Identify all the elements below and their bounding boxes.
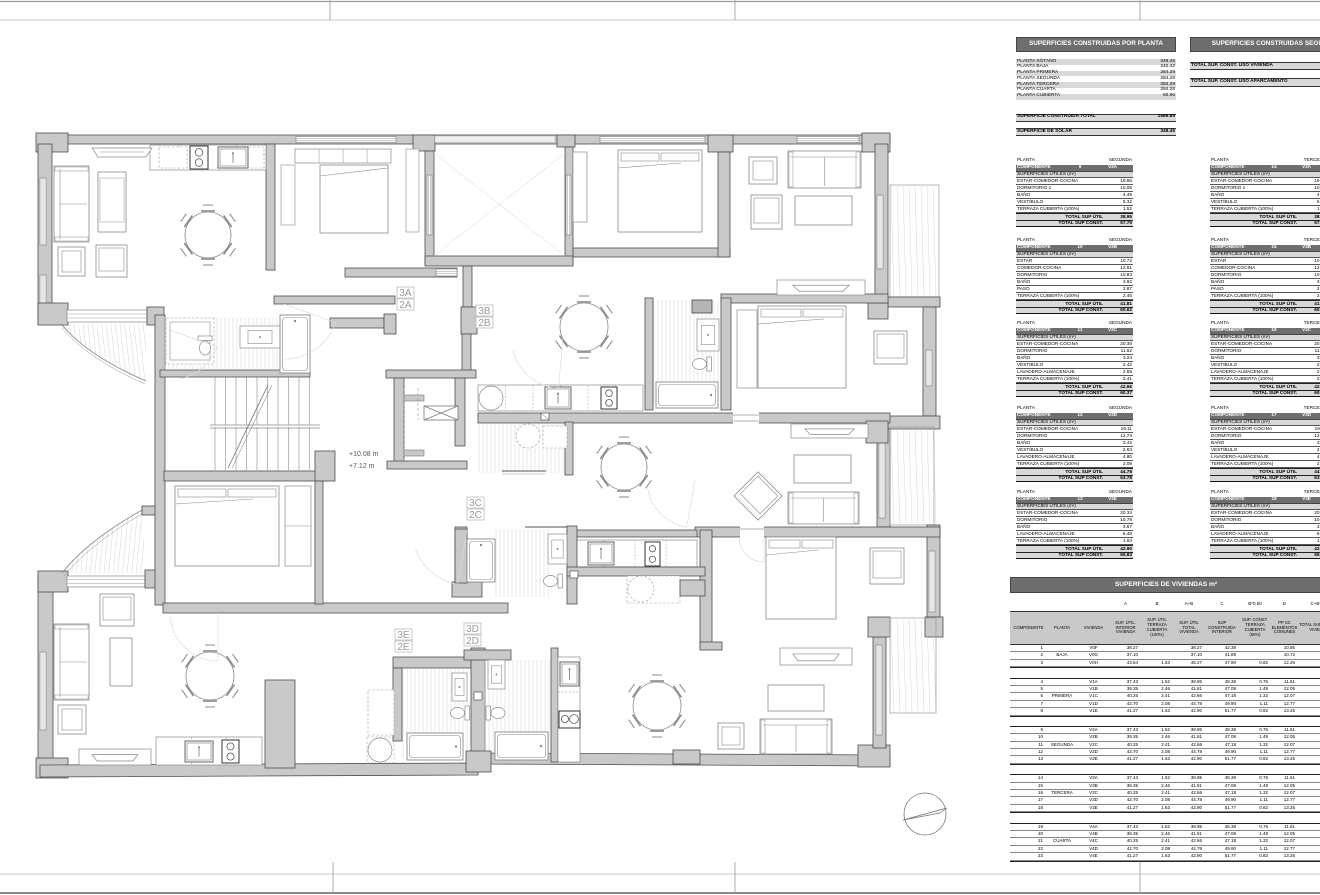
svg-text:3E: 3E [397,630,410,641]
svg-text:+7.12 m: +7.12 m [349,463,375,470]
svg-text:3B: 3B [478,306,491,317]
svg-text:+10.08 m: +10.08 m [349,451,379,458]
svg-text:2B: 2B [478,318,491,329]
svg-text:2E: 2E [397,642,410,653]
svg-text:3D: 3D [466,624,479,635]
svg-text:2D: 2D [466,636,479,647]
svg-text:3C: 3C [469,498,482,509]
svg-text:2A: 2A [399,300,412,311]
svg-text:2C: 2C [469,510,482,521]
svg-text:3A: 3A [399,288,412,299]
